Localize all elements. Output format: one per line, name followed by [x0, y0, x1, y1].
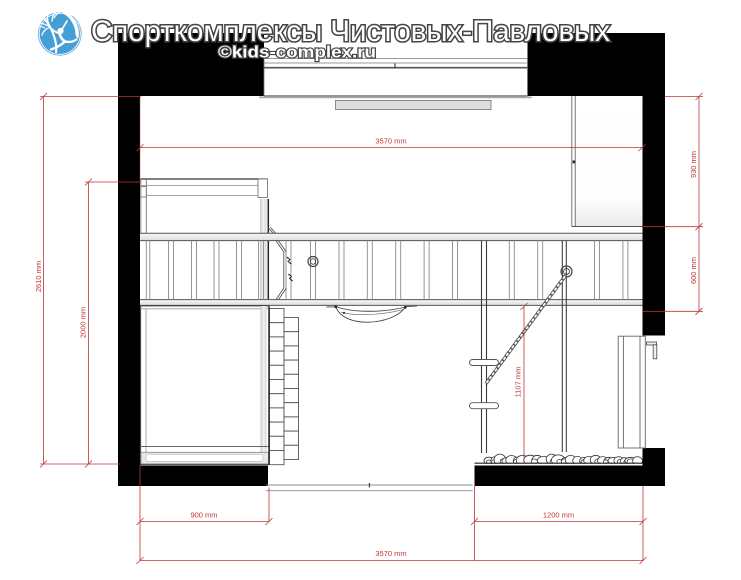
svg-text:1107 mm: 1107 mm — [514, 367, 523, 398]
svg-text:3570 mm: 3570 mm — [375, 549, 406, 558]
svg-text:600 mm: 600 mm — [689, 257, 698, 284]
svg-text:900 mm: 900 mm — [190, 511, 217, 520]
svg-text:2610 mm: 2610 mm — [34, 261, 43, 292]
svg-text:3570 mm: 3570 mm — [375, 137, 406, 146]
svg-text:2000 mm: 2000 mm — [79, 307, 88, 338]
svg-text:©kids-complex.ru: ©kids-complex.ru — [218, 44, 376, 62]
svg-text:930 mm: 930 mm — [689, 151, 698, 178]
svg-text:1200 mm: 1200 mm — [543, 511, 574, 520]
